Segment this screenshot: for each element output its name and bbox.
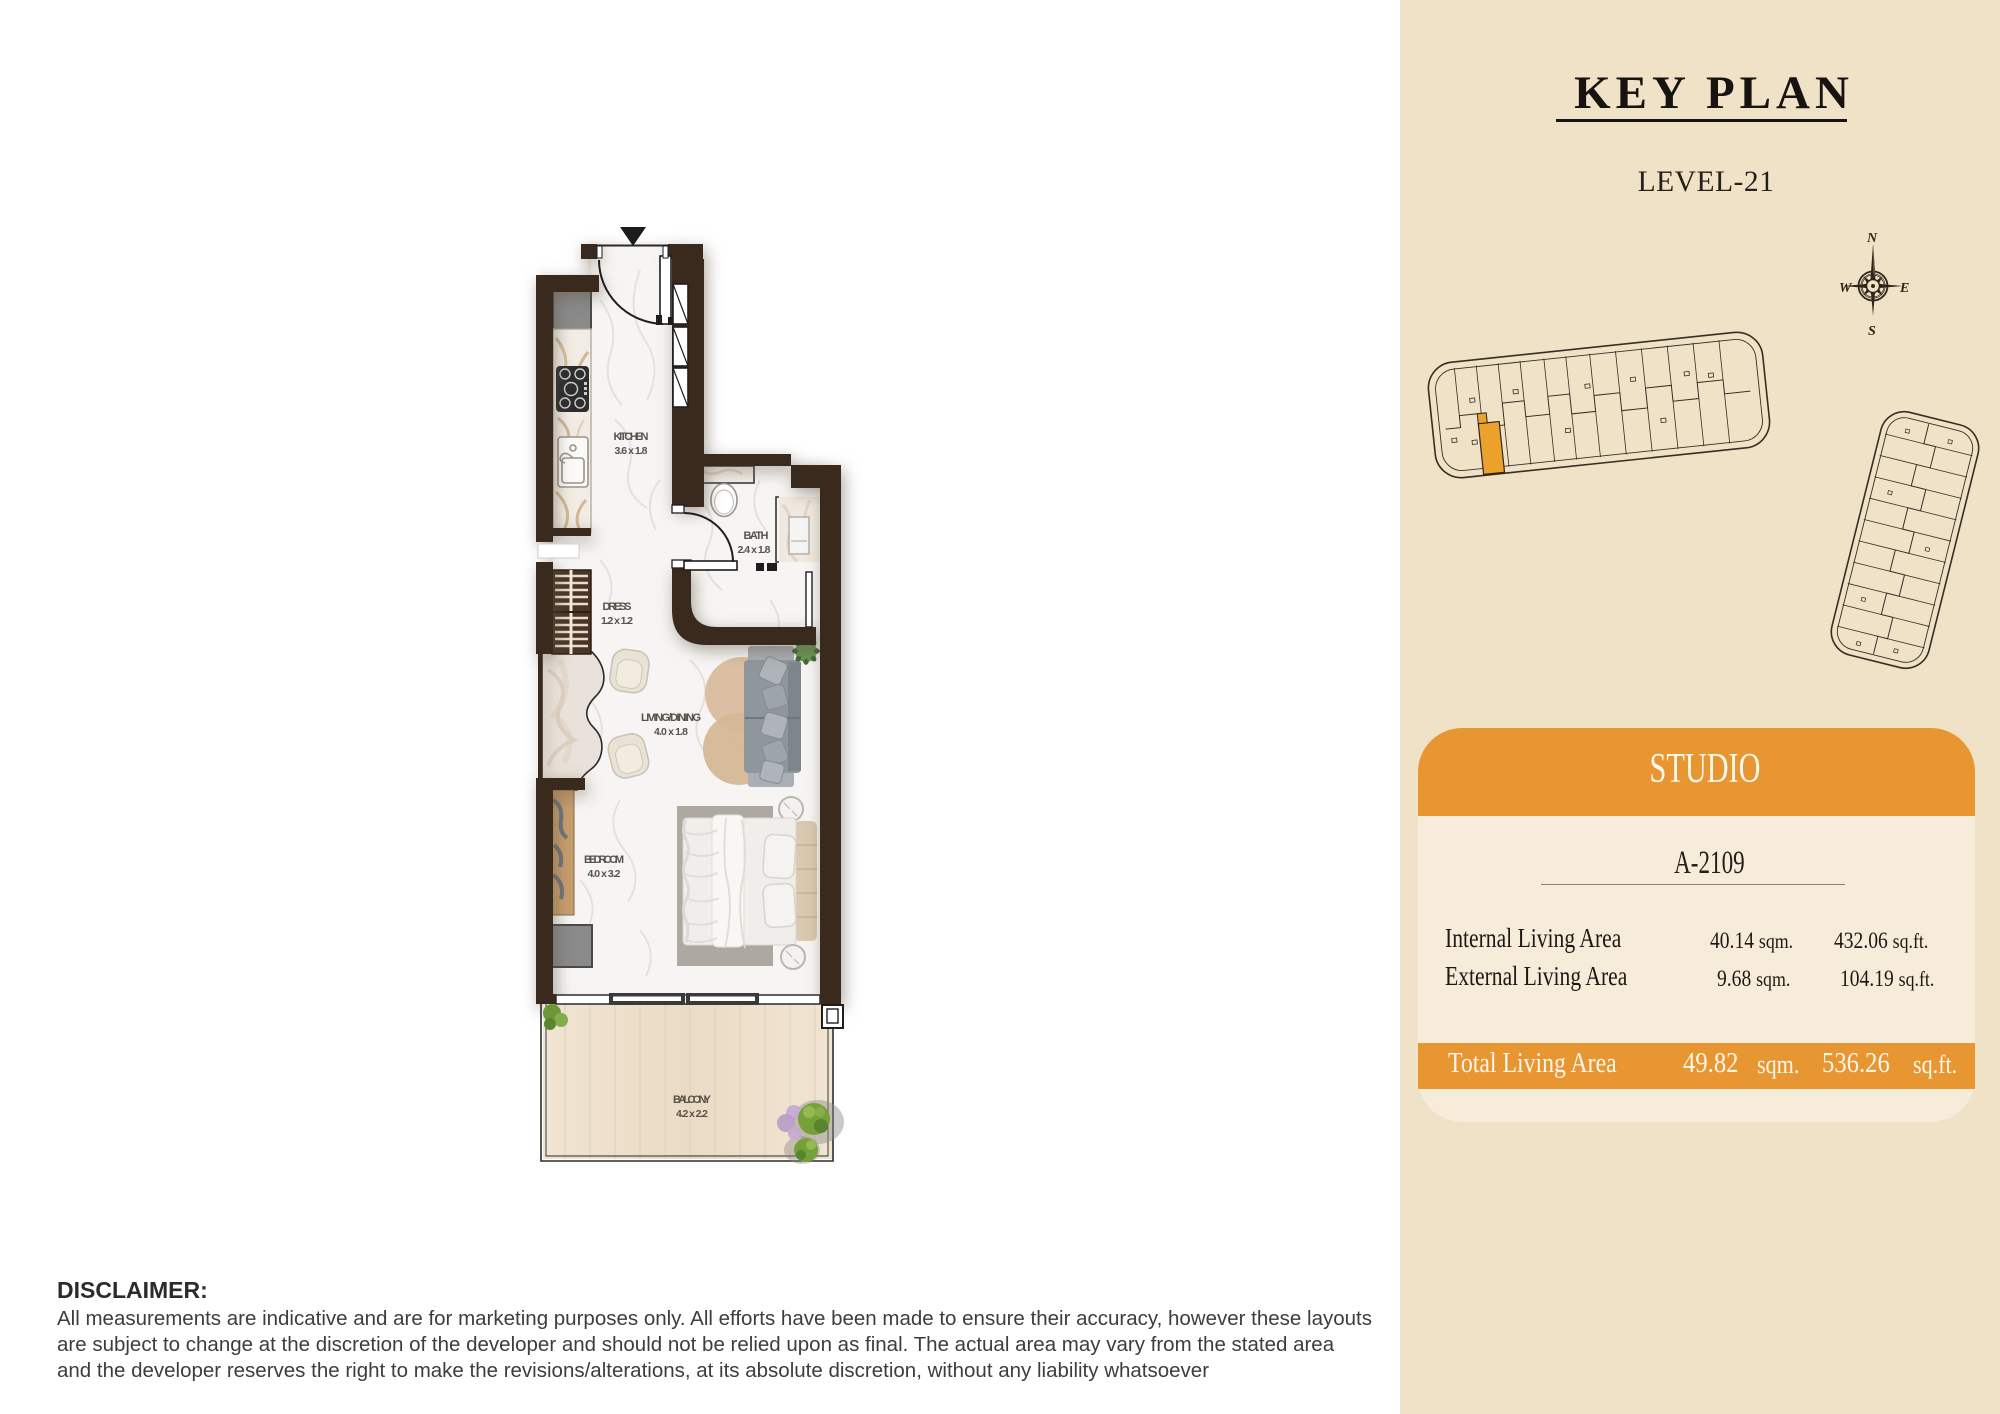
svg-text:4.0 x 3.2: 4.0 x 3.2 xyxy=(588,868,621,880)
svg-text:W: W xyxy=(1839,281,1853,296)
svg-text:LIVING/DINING: LIVING/DINING xyxy=(641,712,701,724)
svg-text:N: N xyxy=(1866,231,1878,246)
svg-text:4.0 x 1.8: 4.0 x 1.8 xyxy=(654,726,688,738)
svg-text:BEDROOM: BEDROOM xyxy=(584,854,624,866)
svg-text:2.4 x 1.8: 2.4 x 1.8 xyxy=(738,544,771,556)
svg-text:KITCHEN: KITCHEN xyxy=(614,431,649,443)
svg-text:BATH: BATH xyxy=(744,530,769,542)
svg-text:BALCONY: BALCONY xyxy=(673,1094,712,1106)
svg-text:3.6 x 1.8: 3.6 x 1.8 xyxy=(615,445,648,457)
svg-text:4.2 x 2.2: 4.2 x 2.2 xyxy=(676,1108,708,1120)
svg-text:DRESS: DRESS xyxy=(603,601,632,613)
svg-text:1.2 x 1.2: 1.2 x 1.2 xyxy=(601,615,633,627)
svg-text:E: E xyxy=(1899,281,1909,296)
